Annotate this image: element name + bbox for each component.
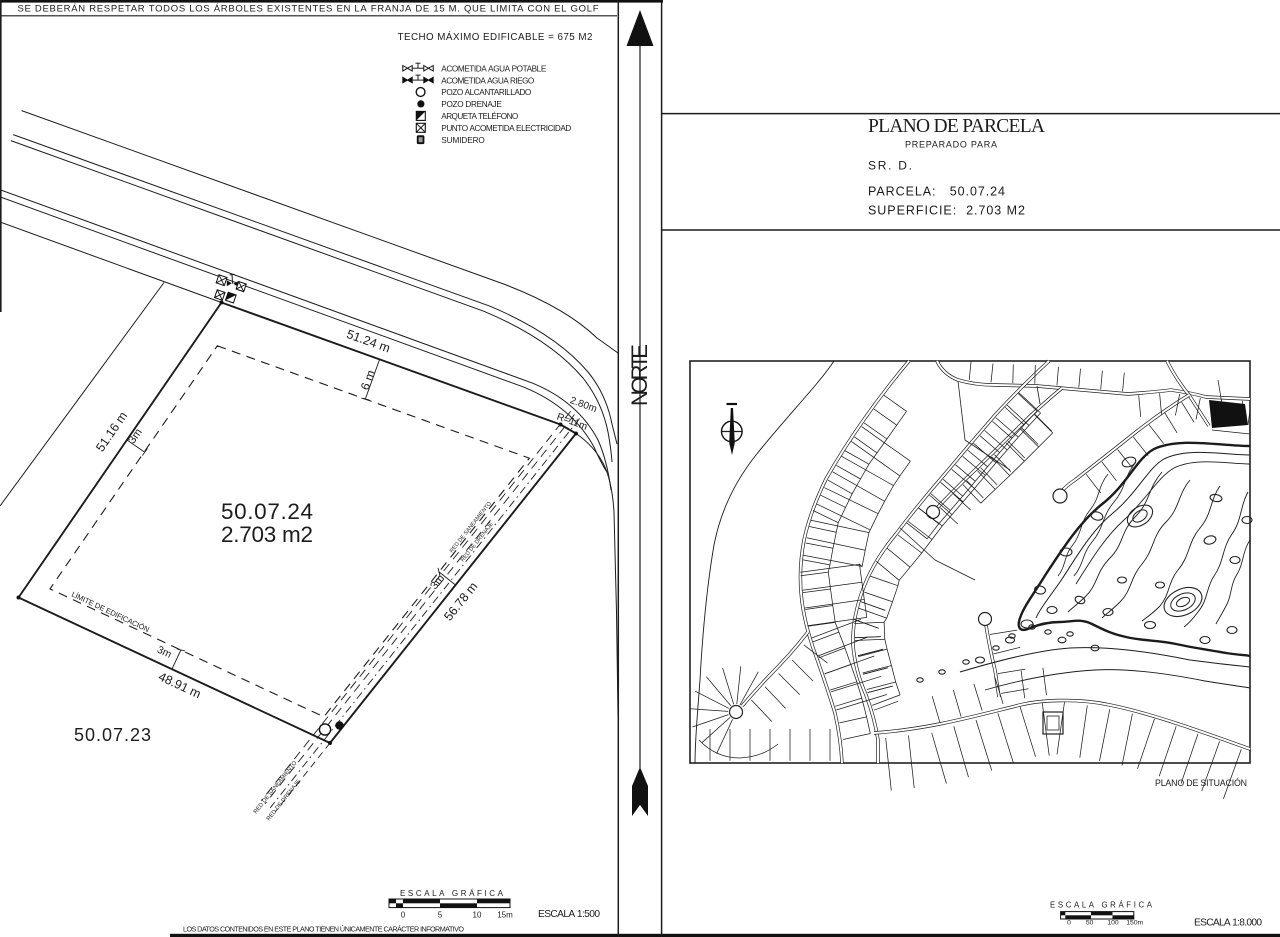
svg-text:15m: 15m xyxy=(497,911,513,920)
svg-text:PLANO DE PARCELA: PLANO DE PARCELA xyxy=(868,116,1045,137)
svg-text:SE DEBERÁN RESPETAR TODOS LOS: SE DEBERÁN RESPETAR TODOS LOS ÁRBOLES EX… xyxy=(18,3,599,14)
svg-text:PREPARADO PARA: PREPARADO PARA xyxy=(905,140,997,150)
svg-text:ESCALA 1:500: ESCALA 1:500 xyxy=(538,909,600,920)
svg-text:ESCALA 1:8.000: ESCALA 1:8.000 xyxy=(1194,918,1262,929)
svg-text:PLANO DE SITUACIÓN: PLANO DE SITUACIÓN xyxy=(1155,778,1247,788)
svg-text:5: 5 xyxy=(438,911,443,920)
svg-text:POZO ALCANTARILLADO: POZO ALCANTARILLADO xyxy=(441,88,531,97)
svg-text:150m: 150m xyxy=(1126,919,1143,926)
svg-text:ACOMETIDA AGUA RIEGO: ACOMETIDA AGUA RIEGO xyxy=(441,76,534,85)
svg-text:0: 0 xyxy=(1067,919,1071,926)
svg-text:0: 0 xyxy=(401,911,406,920)
svg-text:10: 10 xyxy=(473,911,482,920)
svg-text:SUPERFICIE: 2.703 M2: SUPERFICIE: 2.703 M2 xyxy=(868,204,1025,218)
svg-text:100: 100 xyxy=(1107,919,1119,926)
svg-text:PUNTO ACOMETIDA ELECTRICIDAD: PUNTO ACOMETIDA ELECTRICIDAD xyxy=(441,124,571,133)
svg-text:ACOMETIDA AGUA POTABLE: ACOMETIDA AGUA POTABLE xyxy=(441,64,547,73)
svg-text:ARQUETA TELÉFONO: ARQUETA TELÉFONO xyxy=(441,111,518,121)
svg-text:50.07.23: 50.07.23 xyxy=(74,725,151,745)
svg-text:NORTE: NORTE xyxy=(627,344,652,406)
svg-text:TECHO MÁXIMO EDIFICABLE = 675: TECHO MÁXIMO EDIFICABLE = 675 M2 xyxy=(398,32,593,43)
svg-text:POZO DRENAJE: POZO DRENAJE xyxy=(441,100,502,109)
svg-text:50: 50 xyxy=(1086,919,1094,926)
svg-text:50.07.24: 50.07.24 xyxy=(221,499,313,524)
svg-text:PARCELA: 50.07.24: PARCELA: 50.07.24 xyxy=(868,185,1005,199)
svg-text:2.703 m2: 2.703 m2 xyxy=(221,522,313,547)
svg-text:SR. D.: SR. D. xyxy=(868,159,912,173)
svg-text:LOS DATOS CONTENIDOS EN ESTE P: LOS DATOS CONTENIDOS EN ESTE PLANO TIENE… xyxy=(183,925,464,934)
svg-text:SUMIDERO: SUMIDERO xyxy=(441,136,485,145)
